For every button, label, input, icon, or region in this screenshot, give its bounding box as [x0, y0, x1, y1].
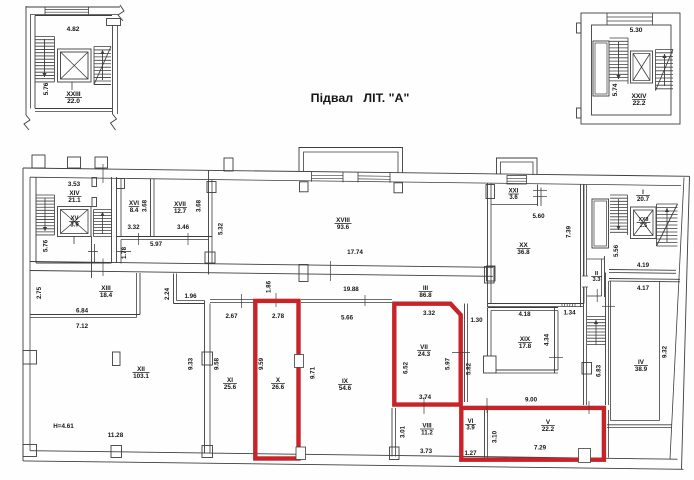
svg-text:5.76: 5.76 [43, 239, 50, 252]
svg-text:5.97: 5.97 [150, 241, 163, 248]
svg-text:2.24: 2.24 [164, 287, 171, 300]
svg-text:4.34: 4.34 [544, 333, 551, 346]
svg-text:9.59: 9.59 [258, 357, 265, 370]
svg-text:5.56: 5.56 [613, 244, 620, 257]
svg-text:54.6: 54.6 [339, 385, 352, 392]
svg-text:9.00: 9.00 [525, 397, 538, 404]
svg-text:9.32: 9.32 [662, 345, 669, 358]
svg-text:20.7: 20.7 [637, 196, 650, 203]
svg-text:3.53: 3.53 [68, 181, 81, 188]
svg-text:3.10: 3.10 [492, 430, 499, 443]
svg-text:36.8: 36.8 [517, 249, 530, 256]
svg-text:XV: XV [70, 216, 78, 222]
svg-text:12.7: 12.7 [174, 208, 187, 215]
svg-text:3.68: 3.68 [142, 199, 149, 212]
svg-text:1.86: 1.86 [266, 280, 273, 293]
svg-text:4.18: 4.18 [518, 311, 531, 318]
svg-text:4.19: 4.19 [637, 262, 650, 269]
svg-text:11.2: 11.2 [421, 429, 433, 436]
svg-text:22.0: 22.0 [67, 98, 80, 105]
svg-text:3.3: 3.3 [592, 277, 601, 283]
svg-text:3.9: 3.9 [70, 222, 79, 228]
svg-text:18.4: 18.4 [100, 292, 113, 299]
svg-text:3.73: 3.73 [420, 448, 433, 455]
svg-text:5.97: 5.97 [445, 357, 452, 370]
svg-text:5.74: 5.74 [612, 83, 619, 96]
svg-text:1.96: 1.96 [184, 293, 197, 300]
svg-text:21.1: 21.1 [68, 197, 81, 204]
svg-text:3.32: 3.32 [423, 310, 436, 317]
svg-text:2.75: 2.75 [36, 286, 43, 299]
svg-text:3.9: 3.9 [466, 425, 475, 431]
svg-text:II: II [595, 271, 599, 277]
svg-text:103.1: 103.1 [133, 373, 149, 380]
svg-text:17.8: 17.8 [519, 343, 532, 350]
svg-text:2.67: 2.67 [225, 313, 238, 320]
svg-text:11.28: 11.28 [108, 432, 124, 439]
svg-text:1.78: 1.78 [121, 246, 128, 259]
svg-text:5.30: 5.30 [630, 27, 643, 34]
svg-text:3.32: 3.32 [127, 224, 140, 231]
svg-text:2.78: 2.78 [272, 313, 285, 320]
svg-text:5.82: 5.82 [466, 362, 473, 375]
svg-text:6.52: 6.52 [403, 361, 410, 374]
svg-text:1.34: 1.34 [563, 310, 576, 317]
svg-text:25.6: 25.6 [224, 384, 237, 391]
svg-text:93.6: 93.6 [337, 224, 350, 231]
svg-text:4.82: 4.82 [67, 26, 80, 33]
svg-text:4.17: 4.17 [637, 285, 650, 292]
svg-text:3.46: 3.46 [177, 224, 190, 231]
svg-text:38.9: 38.9 [635, 366, 648, 373]
svg-text:22.2: 22.2 [542, 426, 555, 433]
svg-text:5.32: 5.32 [218, 222, 225, 235]
svg-text:1.30: 1.30 [470, 317, 483, 324]
svg-text:2.5: 2.5 [640, 223, 647, 229]
svg-text:19.88: 19.88 [343, 286, 359, 293]
svg-text:8.4: 8.4 [130, 207, 139, 214]
svg-text:6.84: 6.84 [76, 308, 89, 315]
svg-text:9.33: 9.33 [188, 357, 195, 370]
svg-text:26.6: 26.6 [272, 384, 285, 391]
svg-text:24.3: 24.3 [418, 351, 431, 358]
svg-text:3.68: 3.68 [196, 199, 203, 212]
svg-text:XXI: XXI [509, 189, 519, 195]
svg-text:22.2: 22.2 [633, 100, 646, 107]
svg-text:5.60: 5.60 [532, 213, 545, 220]
svg-text:7.12: 7.12 [76, 323, 89, 330]
svg-text:H=4.61: H=4.61 [53, 423, 74, 430]
svg-text:1.27: 1.27 [464, 450, 477, 457]
svg-text:7.39: 7.39 [566, 225, 573, 238]
svg-text:17.74: 17.74 [347, 249, 363, 256]
svg-text:7.29: 7.29 [534, 445, 547, 452]
svg-text:3.01: 3.01 [400, 425, 407, 438]
svg-text:VI: VI [468, 419, 474, 425]
svg-text:9.71: 9.71 [310, 366, 317, 379]
svg-text:9.58: 9.58 [214, 357, 221, 370]
svg-text:3.74: 3.74 [419, 394, 432, 401]
svg-text:3.6: 3.6 [509, 195, 518, 201]
svg-text:6.83: 6.83 [596, 364, 603, 377]
svg-text:Підвал ЛІТ. "А": Підвал ЛІТ. "А" [311, 91, 410, 105]
svg-text:5.76: 5.76 [43, 82, 50, 95]
svg-text:5.66: 5.66 [341, 315, 354, 322]
svg-text:86.8: 86.8 [419, 292, 432, 299]
